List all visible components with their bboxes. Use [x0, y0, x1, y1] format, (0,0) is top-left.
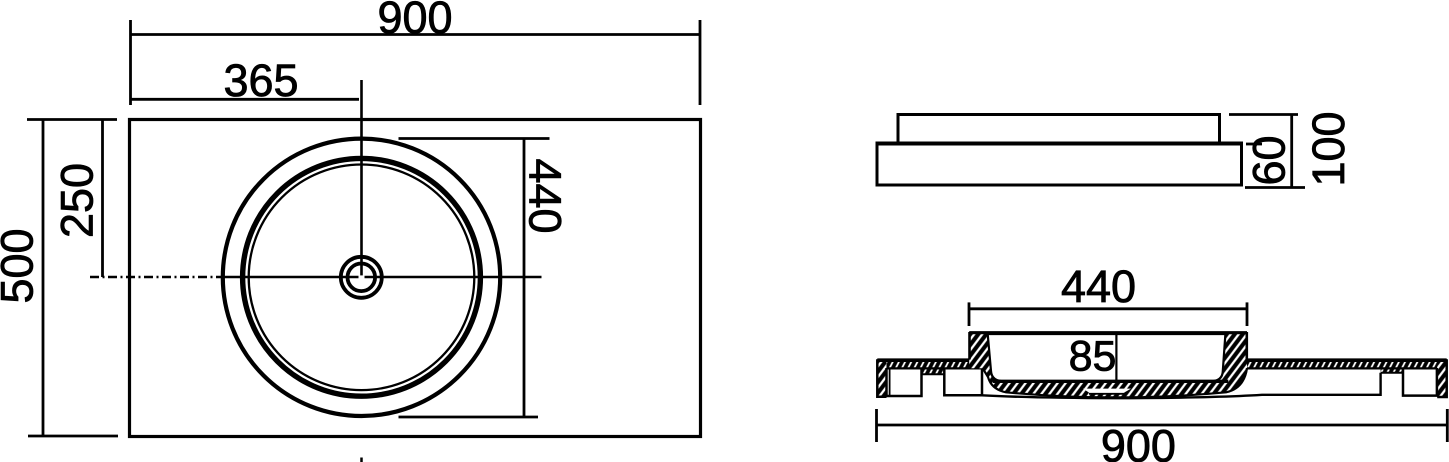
- svg-text:440: 440: [1061, 261, 1136, 312]
- svg-text:85: 85: [1069, 333, 1117, 381]
- svg-text:100: 100: [1303, 111, 1354, 186]
- svg-text:900: 900: [377, 0, 452, 43]
- svg-text:440: 440: [520, 158, 571, 233]
- svg-text:500: 500: [0, 228, 43, 303]
- svg-text:365: 365: [223, 55, 298, 106]
- svg-text:250: 250: [52, 163, 103, 238]
- svg-text:900: 900: [1101, 421, 1176, 462]
- svg-text:60: 60: [1244, 135, 1295, 185]
